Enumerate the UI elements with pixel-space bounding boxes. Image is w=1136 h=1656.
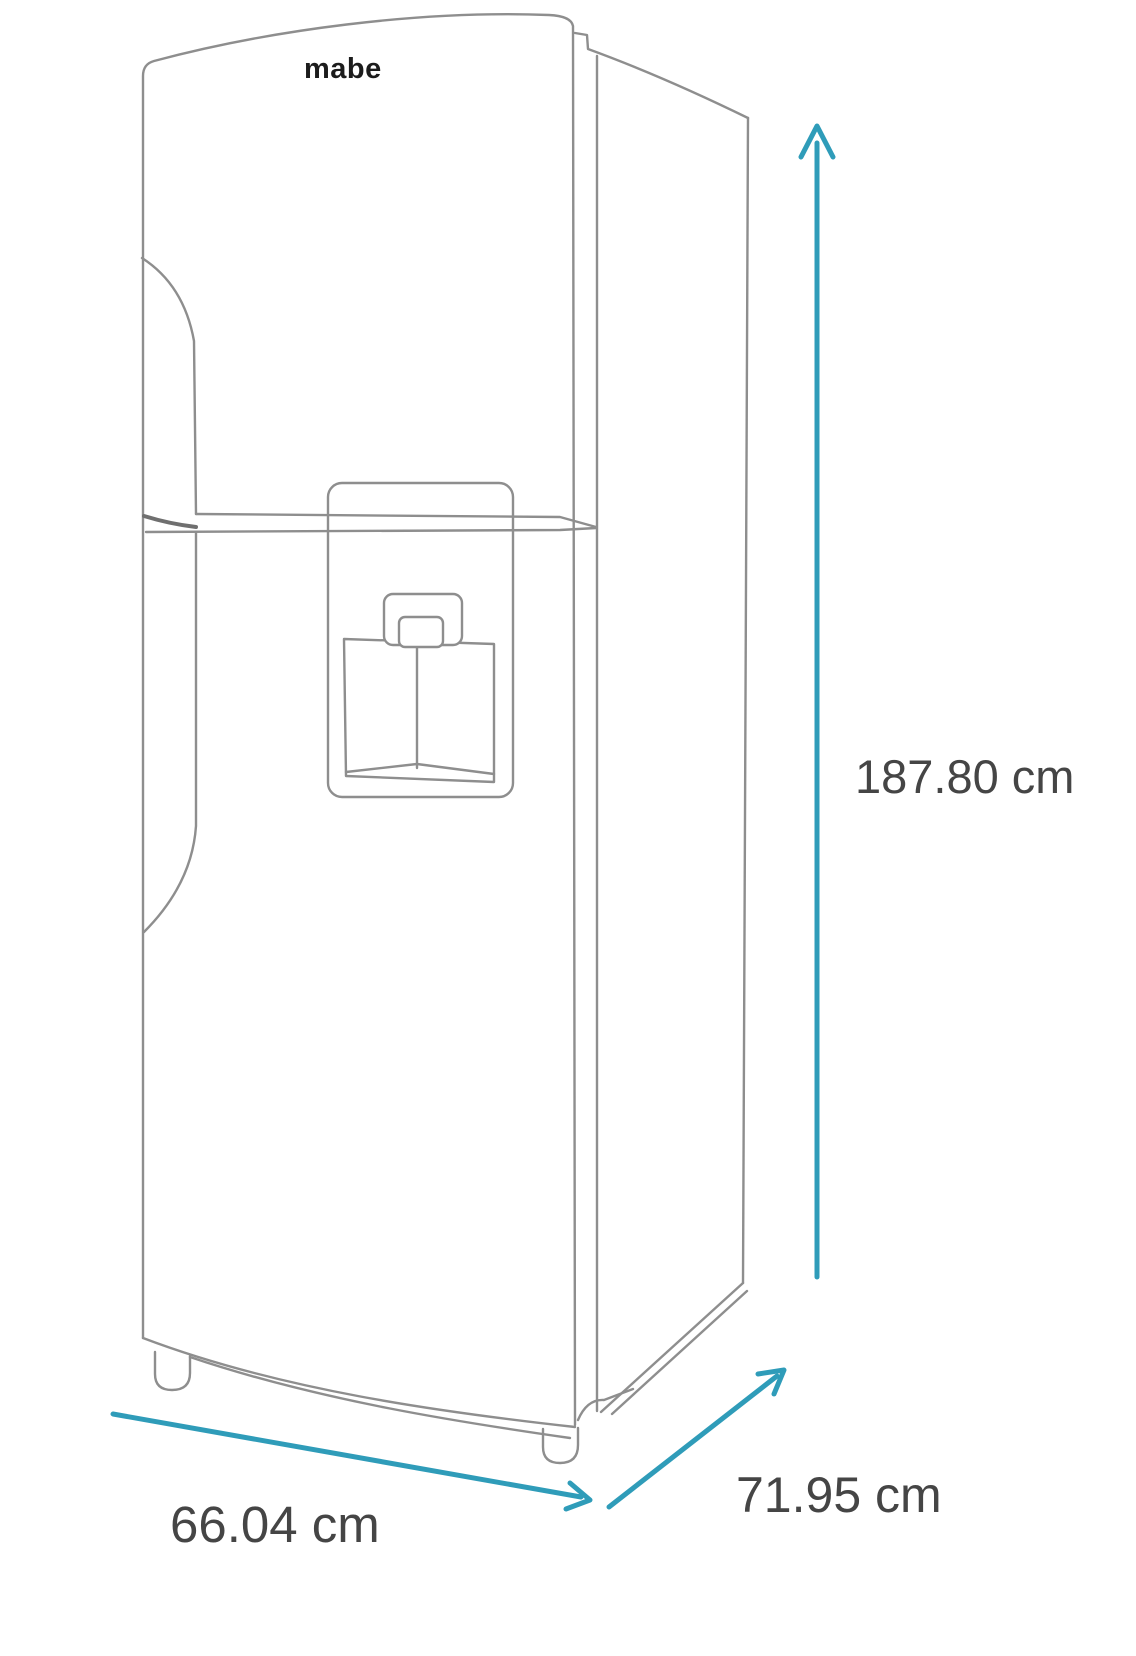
- dispenser-paddle: [399, 617, 443, 647]
- width-arrow-shaft: [113, 1414, 581, 1497]
- width-dimension-label: 66.04 cm: [170, 1496, 380, 1553]
- dimension-arrows: [113, 126, 833, 1509]
- divider-top-line: [196, 514, 596, 527]
- dispenser-cavity-floor: [346, 764, 494, 774]
- product-dimension-diagram: mabe 187.80 cm 66.04 cm 71.95 cm: [0, 0, 1136, 1656]
- fridge-door-seam: [144, 533, 196, 932]
- front-door-outline: [143, 14, 575, 1425]
- brand-logo: mabe: [304, 53, 382, 85]
- freezer-door-seam: [142, 258, 196, 514]
- refrigerator-line-drawing: [142, 14, 748, 1463]
- depth-dimension-label: 71.95 cm: [736, 1467, 942, 1523]
- cabinet-back-edge: [743, 118, 748, 1283]
- dispenser-cavity: [344, 639, 494, 782]
- rear-foot: [578, 1389, 633, 1420]
- front-right-foot: [543, 1428, 578, 1463]
- height-arrow: [801, 126, 833, 1277]
- width-arrow: [113, 1414, 590, 1509]
- front-left-foot: [155, 1352, 190, 1390]
- diagram-svg: mabe 187.80 cm 66.04 cm 71.95 cm: [0, 0, 1136, 1656]
- freezer-bottom-wedge: [144, 516, 196, 527]
- front-bottom-inner-edge: [190, 1357, 570, 1438]
- height-dimension-label: 187.80 cm: [855, 750, 1074, 803]
- divider-bottom-line: [146, 528, 596, 532]
- side-bottom-inner-edge: [612, 1291, 747, 1414]
- front-bottom-edge: [143, 1338, 575, 1427]
- cabinet-top-edge: [575, 33, 748, 118]
